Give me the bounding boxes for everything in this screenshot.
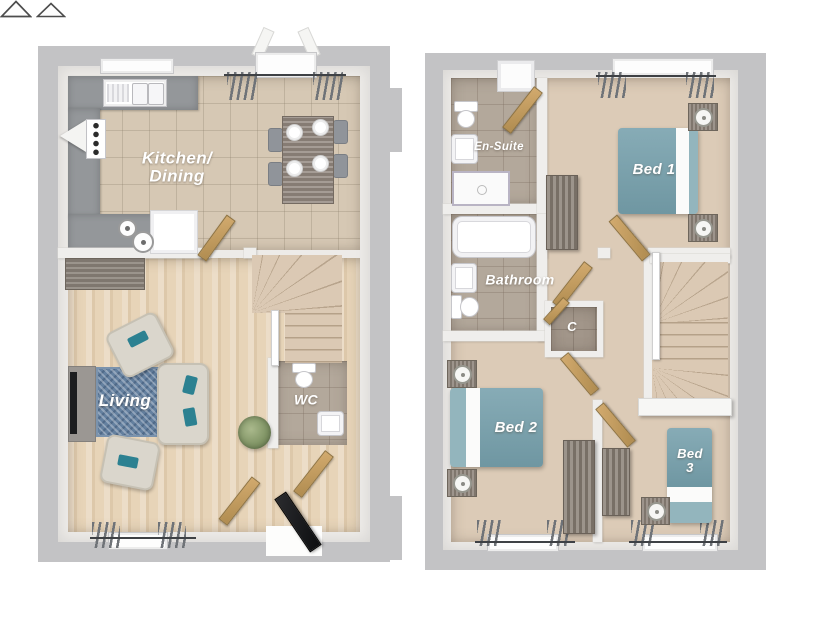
curtain-left-french-door bbox=[227, 72, 257, 100]
bed2-lamp-bottom bbox=[453, 474, 472, 493]
kitchen-appliance bbox=[150, 210, 198, 254]
curtain-left-living bbox=[92, 522, 120, 548]
curtain-rod-bed3 bbox=[629, 541, 727, 543]
curtain-right-living bbox=[158, 522, 186, 548]
bed2-duvet-fold bbox=[466, 388, 480, 467]
bed1-label: Bed 1 bbox=[633, 162, 676, 178]
plate bbox=[286, 124, 303, 141]
stairs-winder-ground bbox=[252, 255, 342, 313]
bathroom-label: Bathroom bbox=[485, 272, 554, 287]
plate bbox=[312, 155, 329, 172]
curtain-rod-bed2 bbox=[475, 541, 575, 543]
ground-floor-wall-step-top bbox=[390, 88, 402, 152]
sink-basin-right bbox=[148, 83, 164, 105]
sofa bbox=[157, 363, 209, 445]
stair-railing-first bbox=[652, 252, 660, 360]
plate bbox=[286, 160, 303, 177]
bed2-pillows bbox=[450, 388, 466, 467]
stairs-winder-first bbox=[652, 262, 728, 324]
stair-railing-ground bbox=[271, 310, 279, 366]
wc-toilet-bowl bbox=[295, 371, 313, 388]
wc-label: WC bbox=[294, 392, 318, 407]
bed2-label: Bed 2 bbox=[495, 420, 538, 436]
bed1-pillows bbox=[689, 128, 698, 214]
curtain-rod-living bbox=[90, 537, 196, 539]
dining-chair bbox=[268, 128, 283, 152]
tv-icon bbox=[70, 372, 77, 434]
bed1-duvet-fold bbox=[676, 128, 689, 214]
bed1-lamp-top bbox=[694, 108, 713, 127]
ground-floor-wall-step-bottom bbox=[390, 496, 402, 560]
bathroom-sink bbox=[451, 263, 477, 293]
curtain-right-french-door bbox=[313, 72, 343, 100]
cupboard-label: C bbox=[567, 320, 577, 334]
wc-sink bbox=[317, 411, 344, 436]
bed2-wardrobe bbox=[563, 440, 595, 534]
bed1-wardrobe bbox=[546, 175, 578, 250]
dining-chair bbox=[333, 154, 348, 178]
ensuite-toilet-bowl bbox=[457, 110, 475, 128]
cooker-hood-icon bbox=[60, 120, 86, 152]
curtain-rod-french-door bbox=[224, 74, 346, 76]
kitchen-window bbox=[100, 58, 174, 74]
dining-chair bbox=[333, 120, 348, 144]
sink-basin-left bbox=[132, 83, 148, 105]
cooker-hob bbox=[86, 119, 106, 159]
kitchen-sink bbox=[103, 79, 167, 107]
bed3-duvet-fold bbox=[667, 487, 712, 502]
sideboard bbox=[65, 258, 145, 290]
bathroom-bottom-wall bbox=[443, 331, 559, 341]
ensuite-label: En-Suite bbox=[474, 141, 524, 153]
ensuite-shower bbox=[452, 171, 510, 206]
bed1-wall-stub bbox=[598, 248, 610, 258]
dining-chair bbox=[268, 162, 283, 186]
floor-plan-image: Kitchen/ Dining Living WC bbox=[0, 0, 840, 627]
bed1-lamp-bottom bbox=[694, 219, 713, 238]
stair-bulkhead-shelf bbox=[638, 398, 732, 416]
bed3-single-bed bbox=[667, 428, 712, 523]
entrance-marker-icon-bottom bbox=[36, 2, 66, 18]
plant bbox=[238, 416, 271, 449]
sink-drainer bbox=[107, 84, 129, 102]
pot-large bbox=[132, 231, 154, 253]
bed3-pillow bbox=[667, 502, 712, 523]
bathroom-toilet-bowl bbox=[460, 297, 479, 317]
curtain-rod-bed1 bbox=[596, 75, 716, 77]
bathtub bbox=[452, 216, 536, 258]
bed3-lamp bbox=[647, 502, 666, 521]
stairs-flight-first bbox=[652, 322, 728, 370]
bed3-label: Bed 3 bbox=[677, 447, 703, 475]
bed2-lamp-top bbox=[453, 365, 472, 384]
ensuite-window bbox=[497, 60, 535, 92]
kitchen-dining-label: Kitchen/ Dining bbox=[142, 150, 212, 187]
stairs-flight-ground bbox=[285, 313, 342, 363]
living-label: Living bbox=[99, 392, 151, 410]
stairs-winder-first-lower bbox=[652, 368, 728, 398]
bed3-wardrobe bbox=[602, 448, 630, 516]
entrance-marker-icon-top bbox=[0, 0, 32, 18]
plate bbox=[312, 119, 329, 136]
